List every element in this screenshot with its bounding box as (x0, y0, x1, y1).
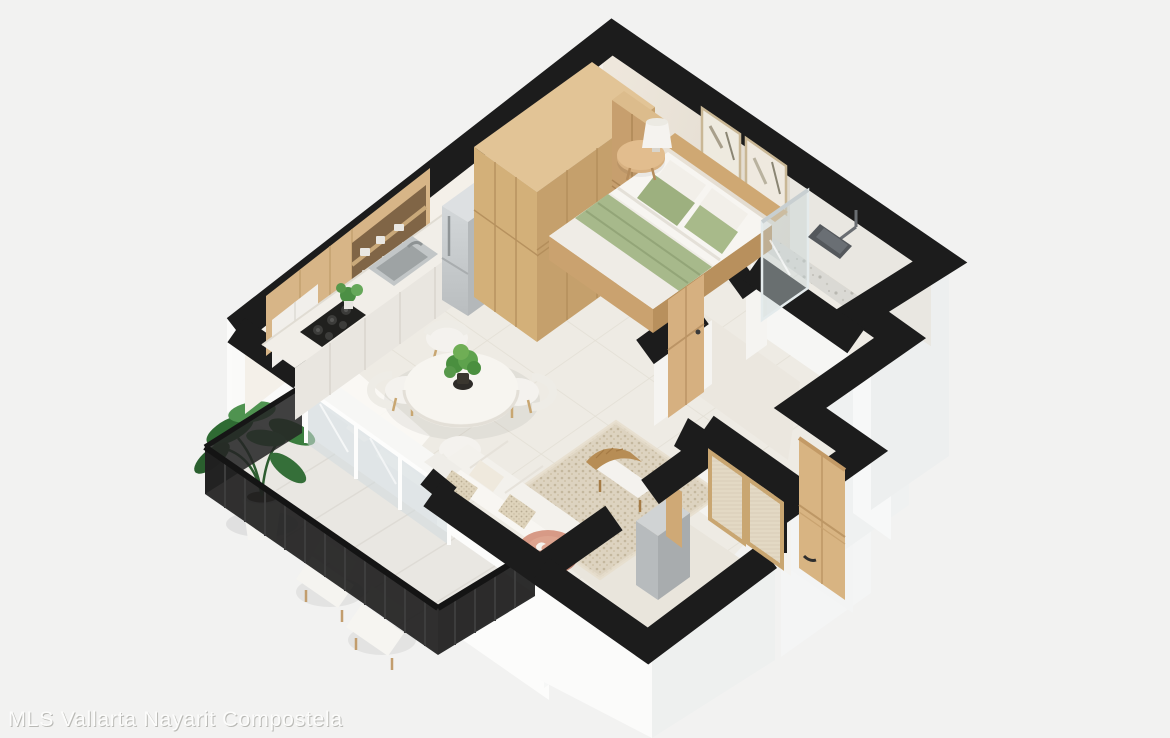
table-lamp (642, 118, 672, 152)
door-handle (696, 330, 701, 335)
floor-plan-render: MLS Vallarta Nayarit Compostela MLS Vall… (0, 0, 1170, 738)
watermark: MLS Vallarta Nayarit Compostela MLS Vall… (8, 707, 344, 732)
watermark-text: MLS Vallarta Nayarit Compostela (8, 707, 343, 731)
isometric-scene: MLS Vallarta Nayarit Compostela MLS Vall… (0, 0, 1170, 738)
